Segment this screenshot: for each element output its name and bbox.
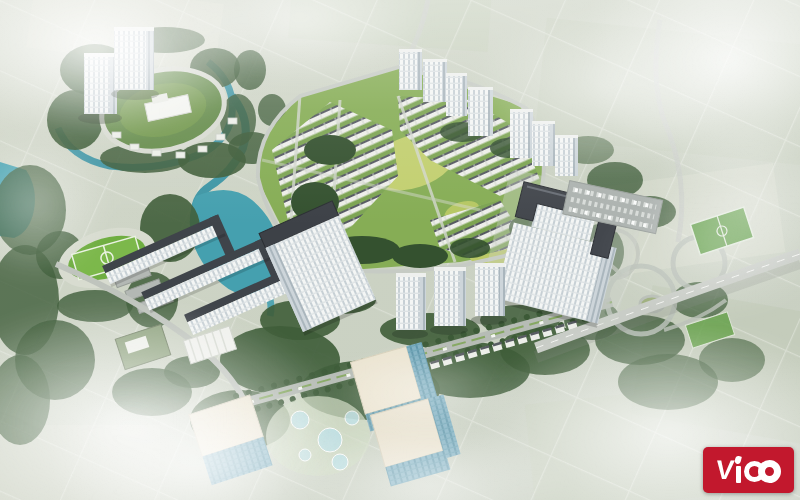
logo-letter-v: V — [715, 457, 736, 484]
terrain-layer — [0, 0, 800, 500]
resort-tower-2 — [111, 27, 159, 100]
vico-logo: V — [703, 447, 794, 493]
aerial-render: V — [0, 0, 800, 500]
water-park-pools — [266, 396, 370, 476]
logo-letter-i — [736, 466, 741, 483]
logo-ring-o-icon — [758, 460, 781, 483]
flame-icon — [734, 455, 742, 464]
